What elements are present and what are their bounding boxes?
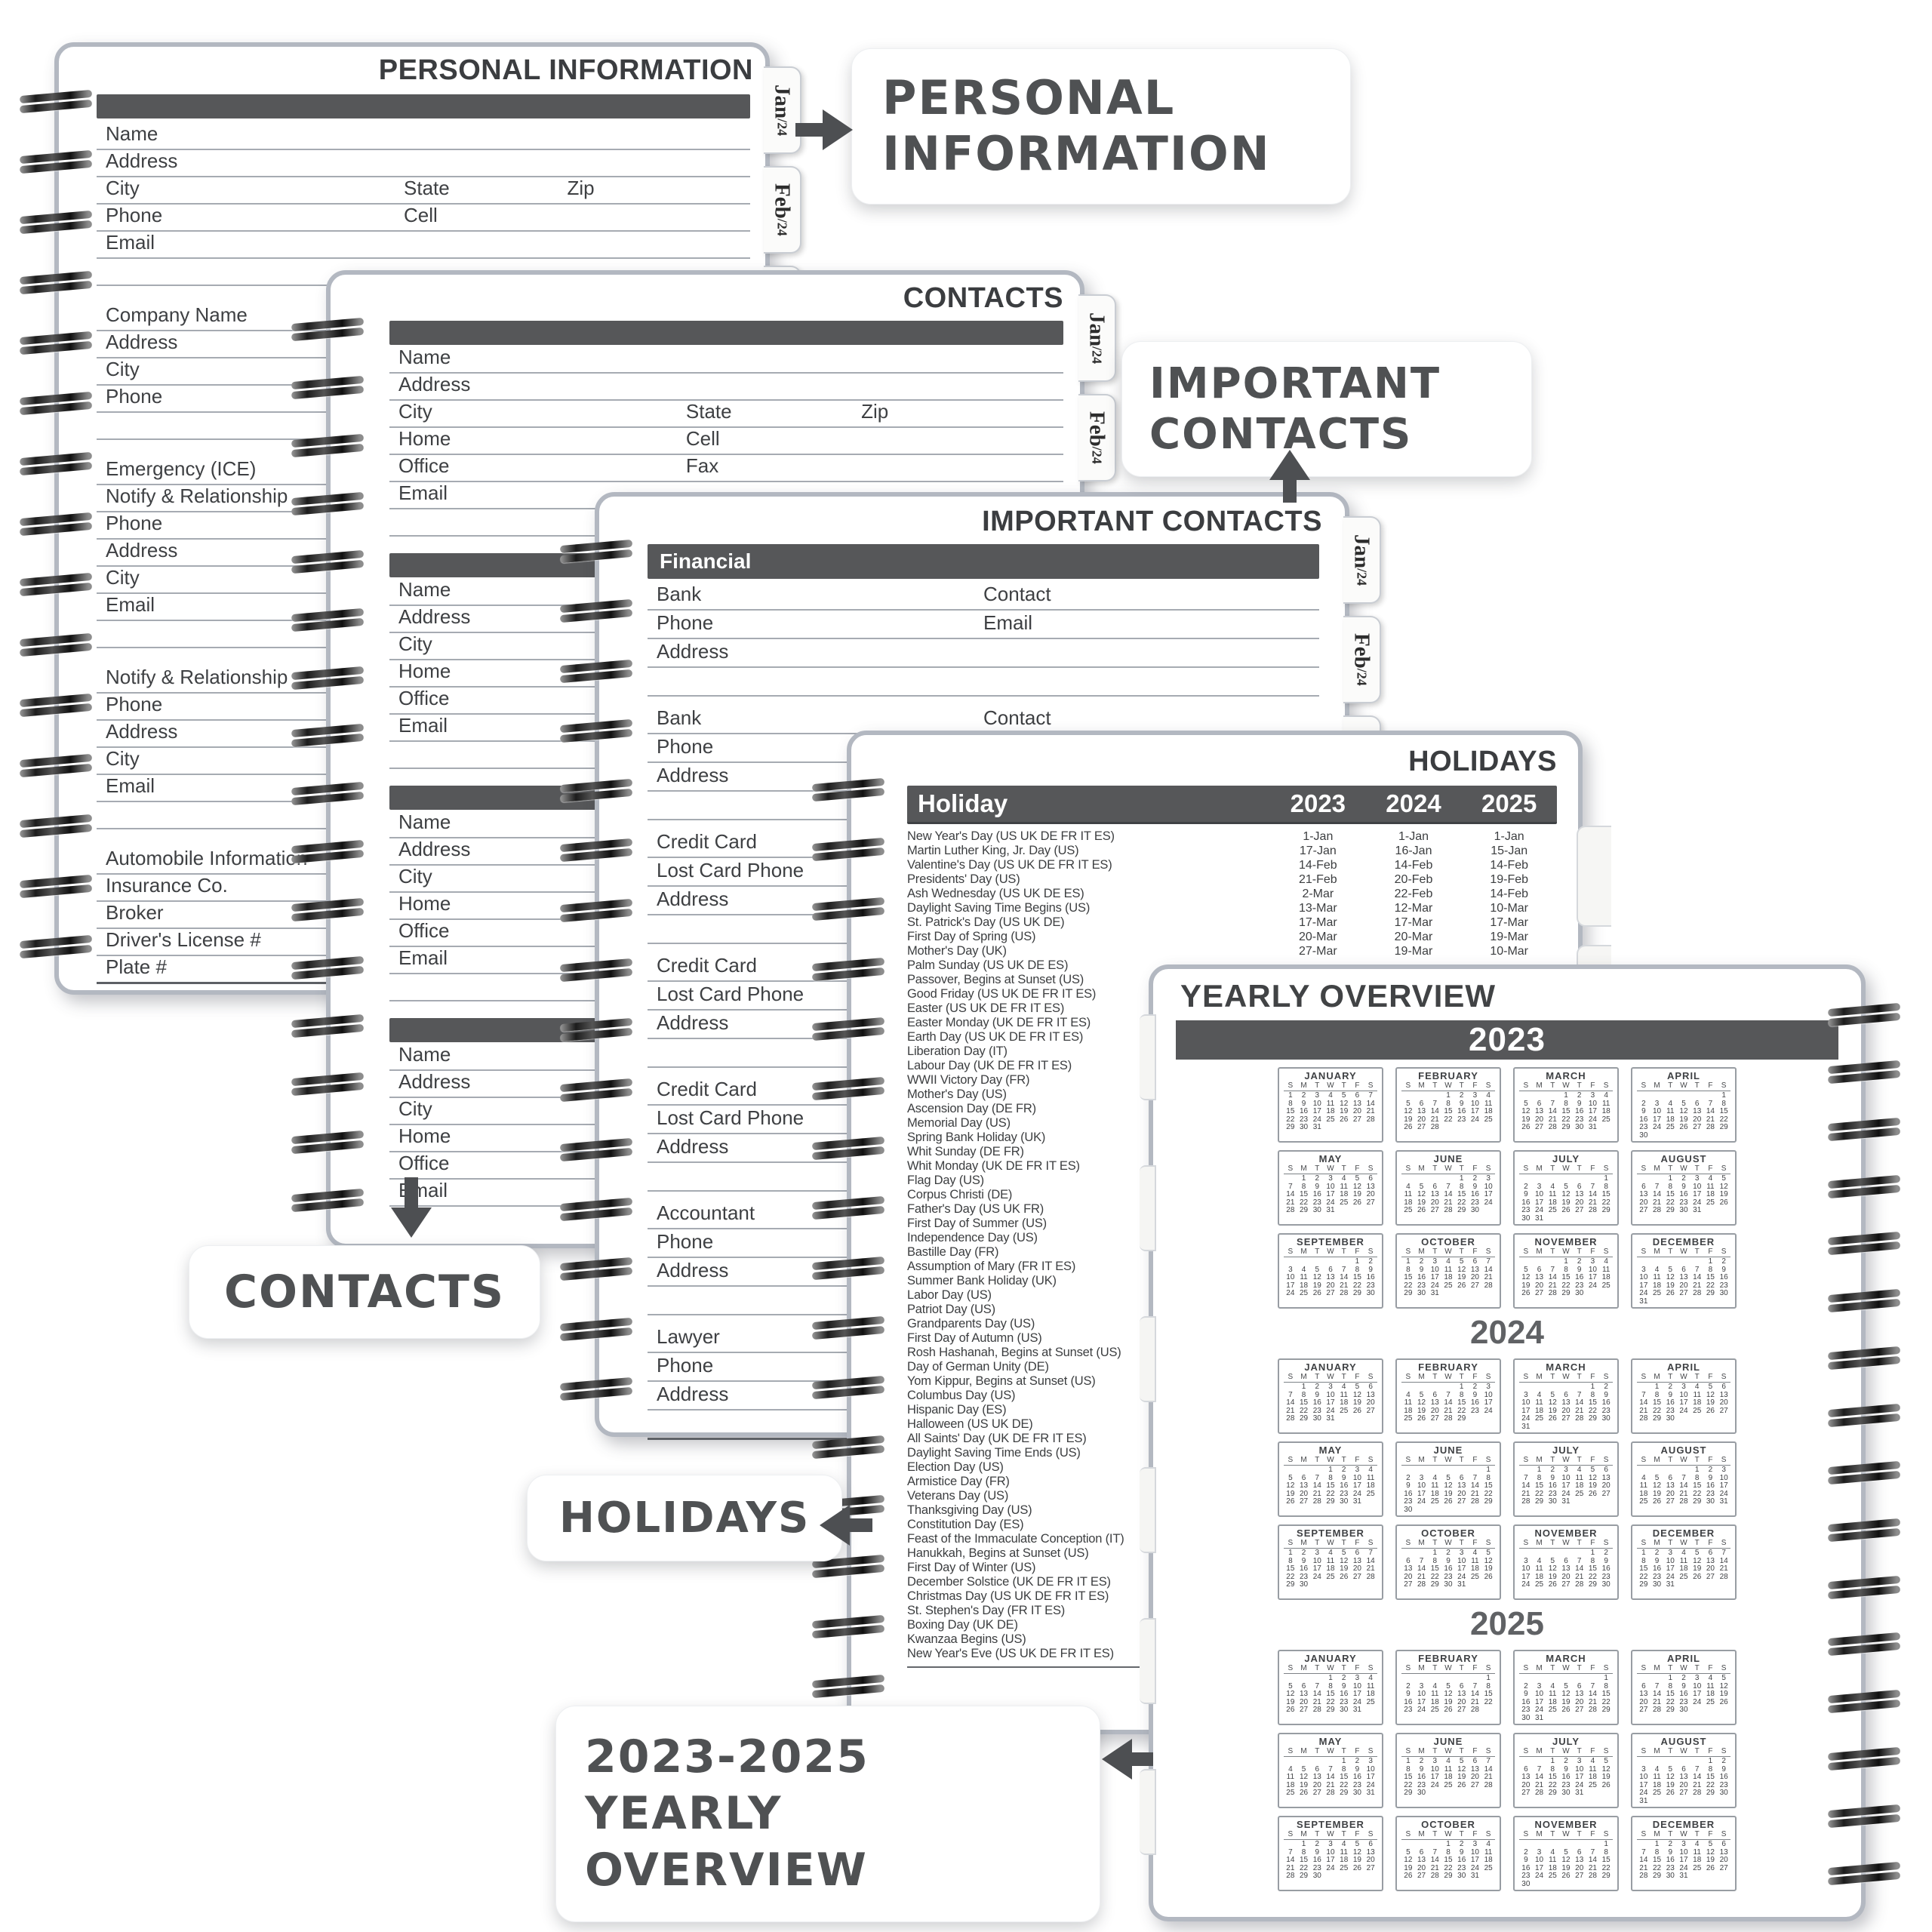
- day-cell: 15: [1599, 1690, 1613, 1699]
- day-cell: 2: [1310, 1841, 1324, 1849]
- dow-label: M: [1297, 1830, 1311, 1838]
- day-cell: 25: [1364, 1699, 1377, 1707]
- field-label: Address: [657, 1383, 728, 1406]
- mini-calendar: FEBRUARYSMTWTFS1234567891011121314151617…: [1395, 1650, 1501, 1725]
- dow-label: S: [1519, 1456, 1533, 1464]
- day-grid: 1234567891011121314151617181920212223242…: [1519, 1841, 1613, 1888]
- calendar-grid: JANUARYSMTWTFS12345678910111213141516171…: [1176, 1358, 1838, 1600]
- dow-label: M: [1533, 1081, 1546, 1090]
- dow-label: W: [1324, 1830, 1337, 1838]
- day-grid: 1234567891011121314151617181920212223242…: [1637, 1258, 1730, 1306]
- day-cell: 24: [1481, 1199, 1495, 1207]
- holiday-dates: 14-Feb14-Feb14-Feb: [1270, 859, 1557, 872]
- spiral-binding: [1828, 1004, 1900, 1885]
- form-row: CityStateZip: [389, 401, 1063, 428]
- day-cell: 16: [1455, 1108, 1469, 1116]
- holiday-name: Martin Luther King, Jr. Day (US): [907, 844, 1078, 858]
- dow-label: T: [1663, 1830, 1677, 1838]
- month-name: FEBRUARY: [1400, 1361, 1497, 1373]
- holidays-header-bar: Holiday 2023 2024 2025: [907, 786, 1557, 824]
- calendar-grid: JANUARYSMTWTFS12345678910111213141516171…: [1176, 1650, 1838, 1891]
- day-cell: 24: [1469, 1116, 1482, 1124]
- day-cell: 30: [1415, 1789, 1429, 1798]
- day-of-week-row: SMTWTFS: [1284, 1456, 1377, 1466]
- day-cell: 3: [1559, 1466, 1573, 1475]
- holiday-name: Constitution Day (ES): [907, 1518, 1023, 1532]
- day-cell: 30: [1297, 1581, 1311, 1589]
- dow-label: T: [1428, 1164, 1441, 1173]
- binding-coil-icon: [560, 600, 632, 623]
- mini-calendar: OCTOBERSMTWTFS12345678910111213141516171…: [1395, 1233, 1501, 1309]
- binding-coil-icon: [560, 1139, 632, 1161]
- day-cell: 2: [1297, 1092, 1311, 1100]
- section-bar: [389, 321, 1063, 345]
- day-cell: 26: [1586, 1491, 1600, 1499]
- day-cell: 29: [1455, 1415, 1469, 1423]
- mini-calendar: MAYSMTWTFS123456789101112131415161718192…: [1278, 1441, 1383, 1517]
- day-cell: 1: [1586, 1549, 1600, 1558]
- field-label: Office: [398, 919, 449, 943]
- day-cell: 4: [1481, 1841, 1495, 1849]
- day-cell: 24: [1310, 1574, 1324, 1582]
- day-grid: 1234567891011121314151617181920212223242…: [1284, 1258, 1377, 1298]
- day-cell: 23: [1519, 1706, 1533, 1715]
- day-cell: 11: [1284, 1774, 1297, 1782]
- tab-notch: [1140, 1014, 1156, 1100]
- day-cell: 26: [1704, 1407, 1718, 1416]
- day-cell: 30: [1663, 1415, 1677, 1423]
- day-cell: 26: [1546, 1581, 1559, 1589]
- day-cell-empty: [1637, 1758, 1651, 1766]
- day-cell: 4: [1481, 1092, 1495, 1100]
- day-cell: 30: [1297, 1124, 1311, 1132]
- day-cell: 27: [1519, 1789, 1533, 1798]
- day-cell: 3: [1428, 1258, 1441, 1266]
- day-cell: 27: [1364, 1407, 1377, 1416]
- day-cell: 7: [1717, 1549, 1730, 1558]
- dow-label: M: [1533, 1373, 1546, 1381]
- day-cell: 16: [1599, 1565, 1613, 1574]
- holiday-name: Easter (US UK DE FR IT ES): [907, 1001, 1064, 1016]
- day-cell: 3: [1324, 1841, 1337, 1849]
- binding-coil-icon: [20, 875, 92, 898]
- day-of-week-row: SMTWTFS: [1637, 1081, 1730, 1091]
- dow-label: T: [1573, 1081, 1586, 1090]
- dow-label: T: [1337, 1664, 1351, 1672]
- holiday-date: 10-Mar: [1461, 902, 1557, 915]
- day-of-week-row: SMTWTFS: [1401, 1539, 1495, 1549]
- day-cell: 25: [1324, 1116, 1337, 1124]
- day-cell-empty: [1663, 1758, 1677, 1766]
- day-cell-empty: [1586, 1175, 1600, 1183]
- day-cell: 9: [1637, 1108, 1651, 1116]
- day-cell: 30: [1351, 1789, 1364, 1798]
- day-cell-empty: [1519, 1383, 1533, 1392]
- field-label: Phone: [657, 1354, 713, 1377]
- day-cell: 13: [1310, 1774, 1324, 1782]
- day-cell: 15: [1455, 1399, 1469, 1407]
- day-cell-empty: [1546, 1092, 1559, 1100]
- dow-label: T: [1546, 1664, 1559, 1672]
- dow-label: S: [1284, 1456, 1297, 1464]
- dow-label: T: [1310, 1081, 1324, 1090]
- day-cell: 10: [1519, 1565, 1533, 1574]
- day-cell-empty: [1401, 1092, 1415, 1100]
- mini-calendar: NOVEMBERSMTWTFS1234567891011121314151617…: [1513, 1816, 1619, 1891]
- month-name: DECEMBER: [1635, 1819, 1732, 1830]
- mini-calendar: NOVEMBERSMTWTFS1234567891011121314151617…: [1513, 1233, 1619, 1309]
- day-cell-empty: [1469, 1466, 1482, 1475]
- dow-label: T: [1428, 1081, 1441, 1090]
- day-cell-empty: [1519, 1758, 1533, 1766]
- field-label: Name: [398, 1043, 451, 1066]
- day-cell: 27: [1533, 1290, 1546, 1298]
- dow-label: S: [1284, 1539, 1297, 1547]
- day-cell: 30: [1599, 1415, 1613, 1423]
- day-grid: 1234567891011121314151617181920212223242…: [1401, 1175, 1495, 1215]
- dow-label: S: [1519, 1830, 1533, 1838]
- day-cell: 6: [1351, 1092, 1364, 1100]
- binding-coil-icon: [812, 1018, 884, 1041]
- day-cell: 3: [1428, 1758, 1441, 1766]
- dow-label: W: [1441, 1664, 1455, 1672]
- dow-label: T: [1428, 1664, 1441, 1672]
- day-cell: 30: [1441, 1581, 1455, 1589]
- dow-label: F: [1586, 1456, 1600, 1464]
- year-header: 2024: [1366, 789, 1462, 818]
- binding-coil-icon: [1828, 1061, 1900, 1084]
- mini-calendar: SEPTEMBERSMTWTFS123456789101112131415161…: [1278, 1816, 1383, 1891]
- holiday-name: First Day of Winter (US): [907, 1561, 1035, 1575]
- day-cell-empty: [1690, 1092, 1704, 1100]
- arrow-stem: [848, 1518, 872, 1532]
- day-cell: 14: [1637, 1857, 1651, 1865]
- holiday-name: Whit Sunday (DE FR): [907, 1145, 1024, 1159]
- day-cell: 7: [1481, 1758, 1495, 1766]
- binding-coil-icon: [812, 1317, 884, 1340]
- dow-label: W: [1324, 1164, 1337, 1173]
- month-tab-label: Jan/24: [1086, 312, 1108, 364]
- dow-label: M: [1533, 1164, 1546, 1173]
- day-cell: 18: [1690, 1857, 1704, 1865]
- day-cell: 2: [1469, 1175, 1482, 1183]
- dow-label: T: [1310, 1539, 1324, 1547]
- day-cell: 21: [1364, 1108, 1377, 1116]
- day-cell: 18: [1481, 1108, 1495, 1116]
- dow-label: S: [1717, 1539, 1730, 1547]
- day-grid: 1234567891011121314151617181920212223242…: [1637, 1758, 1730, 1805]
- day-cell: 1: [1284, 1092, 1297, 1100]
- month-name: MARCH: [1518, 1361, 1614, 1373]
- mini-calendar: JULYSMTWTFS12345678910111213141516171819…: [1513, 1733, 1619, 1808]
- field-label: City: [106, 747, 140, 771]
- field-label: Address: [106, 539, 177, 562]
- binding-coil-icon: [560, 540, 632, 563]
- field-label: Address: [398, 605, 470, 629]
- dow-label: S: [1637, 1539, 1651, 1547]
- day-grid: 1234567891011121314151617181920212223242…: [1401, 1549, 1495, 1589]
- holiday-name: St. Patrick's Day (US UK DE): [907, 915, 1064, 930]
- day-cell: 23: [1455, 1116, 1469, 1124]
- day-cell: 27: [1469, 1282, 1482, 1291]
- day-cell-empty: [1415, 1175, 1429, 1183]
- day-cell: 17: [1469, 1108, 1482, 1116]
- spiral-binding: [20, 91, 92, 958]
- day-cell: 28: [1469, 1706, 1482, 1715]
- day-cell: 3: [1324, 1175, 1337, 1183]
- day-cell: 15: [1704, 1774, 1718, 1782]
- day-cell: 25: [1663, 1124, 1677, 1132]
- tab-notch: [1140, 1165, 1156, 1251]
- dow-label: T: [1337, 1373, 1351, 1381]
- month-name: SEPTEMBER: [1282, 1819, 1379, 1830]
- binding-coil-icon: [20, 936, 92, 958]
- field-label: Phone: [657, 1230, 713, 1254]
- day-of-week-row: SMTWTFS: [1401, 1747, 1495, 1757]
- dow-label: W: [1677, 1539, 1690, 1547]
- day-cell: 3: [1324, 1383, 1337, 1392]
- holiday-dates: 20-Mar20-Mar19-Mar: [1270, 931, 1557, 944]
- day-cell: 26: [1663, 1290, 1677, 1298]
- field-label: Address: [657, 640, 728, 663]
- day-cell: 27: [1559, 1581, 1573, 1589]
- day-cell: 11: [1401, 1399, 1415, 1407]
- binding-coil-icon: [812, 1675, 884, 1698]
- day-cell: 26: [1519, 1124, 1533, 1132]
- day-cell: 27: [1351, 1116, 1364, 1124]
- field-label: Insurance Co.: [106, 874, 228, 897]
- day-grid: 1234567891011121314151617181920212223242…: [1284, 1758, 1377, 1798]
- day-cell: 5: [1337, 1549, 1351, 1558]
- holiday-row: Valentine's Day (US UK DE FR IT ES)14-Fe…: [907, 859, 1557, 873]
- day-cell: 24: [1415, 1706, 1429, 1715]
- day-cell: 9: [1401, 1482, 1415, 1491]
- mini-calendar: DECEMBERSMTWTFS1234567891011121314151617…: [1631, 1816, 1737, 1891]
- mini-calendar: DECEMBERSMTWTFS1234567891011121314151617…: [1631, 1524, 1737, 1600]
- holiday-name: Valentine's Day (US UK DE FR IT ES): [907, 858, 1112, 872]
- field-label: Office: [398, 454, 449, 478]
- binding-coil-icon: [291, 609, 364, 632]
- day-cell: 16: [1297, 1108, 1311, 1116]
- month-name: APRIL: [1635, 1361, 1732, 1373]
- day-cell: 18: [1481, 1857, 1495, 1865]
- day-cell: 14: [1573, 1565, 1586, 1574]
- month-name: AUGUST: [1635, 1444, 1732, 1456]
- day-grid: 1234567891011121314151617181920212223242…: [1284, 1466, 1377, 1506]
- dow-label: T: [1546, 1164, 1559, 1173]
- day-cell: 5: [1455, 1758, 1469, 1766]
- binding-coil-icon: [1828, 1805, 1900, 1828]
- day-grid: 1234567891011121314151617181920212223242…: [1637, 1383, 1730, 1423]
- dow-label: M: [1533, 1247, 1546, 1256]
- day-cell: 16: [1351, 1774, 1364, 1782]
- mini-calendar: JUNESMTWTFS12345678910111213141516171819…: [1395, 1441, 1501, 1517]
- form-row: CityStateZip: [97, 177, 750, 205]
- section-bar: [97, 94, 750, 118]
- day-cell-empty: [1573, 1175, 1586, 1183]
- page-title: CONTACTS: [331, 282, 1063, 315]
- dow-label: M: [1297, 1456, 1311, 1464]
- field-label: Phone: [657, 611, 713, 635]
- day-cell: 25: [1481, 1116, 1495, 1124]
- binding-coil-icon: [1828, 1004, 1900, 1026]
- dow-label: F: [1704, 1664, 1718, 1672]
- holiday-name: Kwanzaa Begins (US): [907, 1632, 1026, 1647]
- day-cell: 18: [1337, 1191, 1351, 1199]
- dow-label: W: [1324, 1456, 1337, 1464]
- day-cell: 20: [1717, 1399, 1730, 1407]
- day-cell: 10: [1651, 1108, 1664, 1116]
- day-cell: 15: [1324, 1690, 1337, 1699]
- holiday-row: Mother's Day (UK)27-Mar19-Mar10-Mar: [907, 945, 1557, 959]
- day-cell: 14: [1310, 1482, 1324, 1491]
- binding-coil-icon: [20, 211, 92, 234]
- day-cell: 12: [1663, 1274, 1677, 1282]
- dow-label: M: [1297, 1539, 1311, 1547]
- dow-label: S: [1599, 1664, 1613, 1672]
- year-heading: 2025: [1176, 1606, 1838, 1642]
- day-cell: 6: [1351, 1549, 1364, 1558]
- dow-label: S: [1717, 1664, 1730, 1672]
- day-cell: 1: [1284, 1549, 1297, 1558]
- field-label: Address: [657, 764, 728, 787]
- day-cell: 27: [1704, 1574, 1718, 1582]
- day-cell: 15: [1599, 1191, 1613, 1199]
- dow-label: F: [1704, 1247, 1718, 1256]
- month-name: OCTOBER: [1400, 1527, 1497, 1539]
- day-cell: 3: [1481, 1175, 1495, 1183]
- day-cell: 14: [1586, 1857, 1600, 1865]
- day-cell: 14: [1546, 1274, 1559, 1282]
- day-cell-empty: [1573, 1675, 1586, 1683]
- field-label: City: [106, 358, 140, 381]
- day-cell: 2: [1546, 1466, 1559, 1475]
- binding-coil-icon: [560, 1258, 632, 1281]
- day-cell-empty: [1401, 1175, 1415, 1183]
- day-cell: 16: [1415, 1774, 1429, 1782]
- day-cell: 16: [1704, 1482, 1718, 1491]
- day-cell: 29: [1441, 1872, 1455, 1881]
- day-cell: 25: [1441, 1282, 1455, 1291]
- day-cell: 3: [1310, 1549, 1324, 1558]
- day-cell: 24: [1690, 1699, 1704, 1707]
- day-cell: 27: [1324, 1290, 1337, 1298]
- dow-label: T: [1546, 1830, 1559, 1838]
- field-label: Address: [657, 888, 728, 911]
- day-cell: 27: [1573, 1872, 1586, 1881]
- day-cell: 11: [1546, 1191, 1559, 1199]
- holiday-dates: 21-Feb20-Feb19-Feb: [1270, 873, 1557, 887]
- month-tab: Feb/24: [1343, 616, 1381, 703]
- dow-label: T: [1310, 1830, 1324, 1838]
- holiday-name: Assumption of Mary (FR IT ES): [907, 1260, 1075, 1274]
- dow-label: S: [1717, 1830, 1730, 1838]
- field-label: Email: [106, 593, 155, 617]
- field-label: Phone: [106, 385, 162, 408]
- binding-coil-icon: [291, 724, 364, 747]
- dow-label: S: [1481, 1747, 1495, 1755]
- holiday-name: Flag Day (US): [907, 1174, 984, 1188]
- day-cell: 10: [1519, 1399, 1533, 1407]
- day-cell: 14: [1677, 1482, 1690, 1491]
- day-cell: 5: [1690, 1549, 1704, 1558]
- holiday-name: Boxing Day (UK DE): [907, 1618, 1018, 1632]
- holiday-row: New Year's Day (US UK DE FR IT ES)1-Jan1…: [907, 830, 1557, 844]
- day-cell: 2: [1677, 1675, 1690, 1683]
- day-of-week-row: SMTWTFS: [1637, 1164, 1730, 1174]
- dow-label: F: [1469, 1830, 1482, 1838]
- day-of-week-row: SMTWTFS: [1401, 1664, 1495, 1674]
- day-cell-empty: [1677, 1466, 1690, 1475]
- day-cell: 3: [1677, 1383, 1690, 1392]
- day-cell-empty: [1415, 1092, 1429, 1100]
- holiday-name: Feast of the Immaculate Conception (IT): [907, 1532, 1124, 1546]
- day-cell: 15: [1481, 1482, 1495, 1491]
- holiday-name: Hispanic Day (ES): [907, 1403, 1006, 1417]
- mini-calendar: APRILSMTWTFS1234567891011121314151617181…: [1631, 1358, 1737, 1434]
- day-cell: 13: [1428, 1191, 1441, 1199]
- day-cell: 30: [1519, 1881, 1533, 1889]
- day-cell: 15: [1704, 1274, 1718, 1282]
- dow-label: M: [1651, 1539, 1664, 1547]
- day-cell-empty: [1546, 1175, 1559, 1183]
- dow-label: T: [1663, 1664, 1677, 1672]
- dow-label: T: [1690, 1247, 1704, 1256]
- field-label: Home: [398, 660, 451, 683]
- day-of-week-row: SMTWTFS: [1637, 1830, 1730, 1840]
- day-cell: 17: [1677, 1857, 1690, 1865]
- dow-label: M: [1297, 1247, 1311, 1256]
- day-cell: 27: [1428, 1207, 1441, 1215]
- day-cell: 2: [1415, 1258, 1429, 1266]
- day-cell: 2: [1717, 1258, 1730, 1266]
- day-cell: 25: [1364, 1491, 1377, 1499]
- dow-label: S: [1481, 1664, 1495, 1672]
- day-cell-empty: [1546, 1258, 1559, 1266]
- day-cell-empty: [1533, 1175, 1546, 1183]
- day-cell: 10: [1533, 1690, 1546, 1699]
- dow-label: S: [1717, 1373, 1730, 1381]
- field-label: Phone: [106, 693, 162, 716]
- day-cell: 2: [1310, 1175, 1324, 1183]
- month-name: JULY: [1518, 1153, 1614, 1164]
- dow-label: F: [1351, 1456, 1364, 1464]
- day-cell: 10: [1533, 1191, 1546, 1199]
- day-cell: 5: [1586, 1466, 1600, 1475]
- day-cell-empty: [1284, 1841, 1297, 1849]
- day-cell: 26: [1441, 1498, 1455, 1506]
- day-of-week-row: SMTWTFS: [1519, 1456, 1613, 1466]
- day-cell: 28: [1284, 1872, 1297, 1881]
- field-label: Address: [398, 1070, 470, 1094]
- day-cell: 26: [1351, 1407, 1364, 1416]
- day-cell: 3: [1481, 1383, 1495, 1392]
- day-cell-empty: [1428, 1383, 1441, 1392]
- binding-coil-icon: [1828, 1863, 1900, 1885]
- day-cell: 26: [1441, 1706, 1455, 1715]
- day-cell: 2: [1469, 1383, 1482, 1392]
- day-cell: 24: [1481, 1407, 1495, 1416]
- day-cell: 14: [1428, 1108, 1441, 1116]
- holiday-name: Hanukkah, Begins at Sunset (US): [907, 1546, 1089, 1561]
- holiday-date: 1-Jan: [1366, 830, 1462, 844]
- day-cell: 23: [1519, 1872, 1533, 1881]
- day-cell: 28: [1586, 1207, 1600, 1215]
- dow-label: S: [1519, 1164, 1533, 1173]
- field-label: Name: [398, 346, 451, 369]
- day-cell: 1: [1441, 1092, 1455, 1100]
- field-label: Lost Card Phone: [657, 983, 804, 1006]
